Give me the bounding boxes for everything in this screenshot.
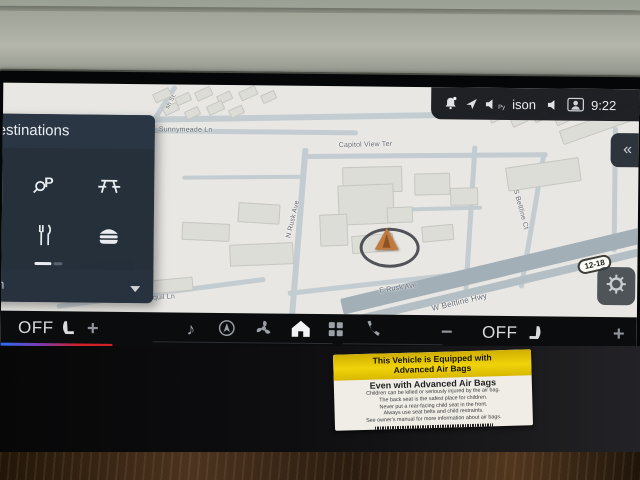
navigation-icon — [218, 318, 236, 341]
svg-text:P: P — [44, 174, 54, 190]
map-settings-button[interactable] — [597, 267, 635, 305]
panel-header: Destinations — [1, 113, 155, 149]
chevron-left-icon: « — [623, 141, 632, 159]
parking-search-button[interactable]: P — [23, 168, 67, 204]
building — [414, 173, 451, 196]
search-input-text: Search — [1, 276, 5, 291]
audio-source-text: ison — [512, 97, 536, 112]
restaurants-button[interactable] — [23, 219, 67, 255]
page-indicator-active — [34, 262, 51, 265]
bell-icon[interactable] — [443, 95, 458, 111]
building — [237, 202, 280, 225]
seat-heat-right-minus[interactable]: − — [437, 315, 457, 349]
building — [229, 242, 294, 267]
street-label: Sunnymeade Ln — [159, 126, 213, 134]
location-arrow-icon — [465, 97, 478, 110]
infotainment-screen: Sunnymeade Ln sh St. Capitol View Ter N … — [0, 69, 640, 356]
destinations-panel: Destinations P — [1, 113, 155, 303]
home-icon — [290, 318, 312, 343]
fan-icon — [255, 319, 273, 342]
status-bar: Py ison 9:22 — [431, 87, 639, 121]
apps-button[interactable] — [325, 314, 347, 348]
road — [182, 175, 302, 180]
home-button[interactable] — [288, 314, 314, 348]
seat-heat-left-off[interactable]: OFF — [13, 311, 59, 345]
building — [450, 187, 478, 206]
wood-trim — [0, 452, 640, 480]
music-note-icon: ♪ — [186, 320, 195, 340]
building — [194, 86, 214, 102]
parking-search-icon: P — [32, 171, 58, 200]
building — [181, 222, 230, 242]
phone-icon — [363, 320, 380, 342]
heated-seat-icon — [57, 311, 79, 345]
destinations-panel-title: Destinations — [1, 122, 70, 140]
driver-profile-icon[interactable] — [567, 98, 584, 112]
app-grid-icon — [328, 321, 344, 342]
gear-icon — [606, 274, 626, 299]
speaker-carplay-icon: Py — [485, 97, 505, 110]
vehicle-marker — [375, 228, 399, 250]
chevron-down-icon[interactable] — [128, 281, 142, 299]
destination-search-field[interactable]: Search — [1, 268, 154, 303]
dashboard-top — [0, 0, 640, 78]
sticker-yellow-band: This Vehicle is Equipped with Advanced A… — [333, 349, 532, 381]
building — [206, 100, 226, 116]
dash-seam — [0, 6, 640, 15]
speaker-sub-label: Py — [498, 104, 505, 110]
building — [387, 206, 414, 223]
building — [260, 90, 277, 104]
picnic-area-button[interactable] — [87, 169, 131, 205]
media-button[interactable]: ♪ — [180, 313, 202, 347]
phone-button[interactable] — [361, 314, 383, 348]
page-indicator — [53, 262, 62, 265]
fast-food-button[interactable] — [87, 220, 131, 256]
building — [505, 157, 582, 192]
fast-food-icon — [97, 225, 121, 250]
picnic-area-icon — [96, 173, 122, 200]
clock: 9:22 — [591, 97, 616, 112]
seat-heat-left-plus[interactable]: + — [83, 312, 103, 346]
street-label: S Beltline Ct — [512, 189, 530, 231]
building — [421, 224, 454, 243]
navigation-map[interactable]: Sunnymeade Ln sh St. Capitol View Ter N … — [1, 83, 640, 356]
road — [303, 152, 548, 159]
street-label: Capitol View Ter — [339, 141, 393, 149]
seat-heat-right-off[interactable]: OFF — [477, 316, 523, 350]
climate-button[interactable] — [253, 313, 275, 347]
building — [319, 214, 348, 247]
building — [238, 85, 259, 102]
dock-divider — [343, 343, 443, 345]
airbag-warning-sticker: This Vehicle is Equipped with Advanced A… — [333, 349, 533, 430]
map-side-panel-button[interactable]: « — [610, 133, 639, 167]
dashboard-photo: Sunnymeade Ln sh St. Capitol View Ter N … — [0, 0, 640, 480]
navigation-button[interactable] — [216, 313, 238, 347]
muted-speaker-icon — [547, 98, 560, 111]
restaurant-icon — [34, 223, 56, 252]
